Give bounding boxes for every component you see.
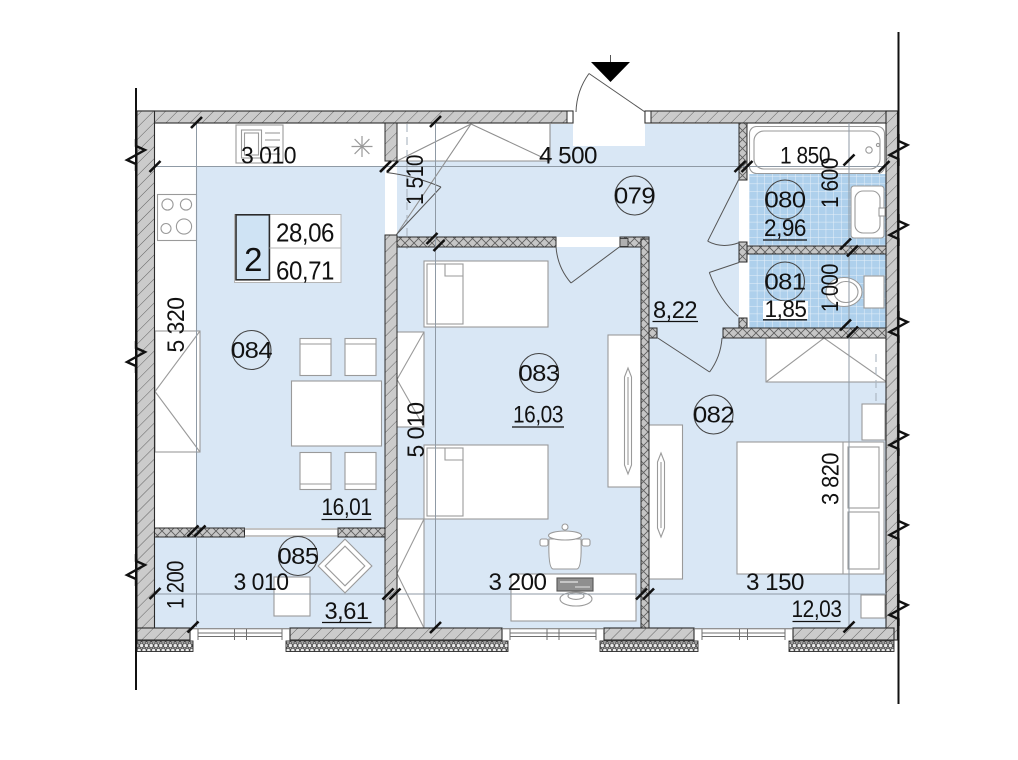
svg-text:1,85: 1,85 [765,296,807,323]
svg-text:1 000: 1 000 [817,264,844,312]
svg-text:3 820: 3 820 [818,453,845,505]
svg-text:8,22: 8,22 [653,297,697,324]
svg-text:4 500: 4 500 [539,143,597,170]
svg-text:5 010: 5 010 [403,402,430,457]
svg-text:082: 082 [693,402,734,428]
svg-text:079: 079 [614,183,655,209]
svg-text:3 010: 3 010 [234,569,289,596]
svg-text:1 200: 1 200 [163,561,190,609]
svg-text:080: 080 [765,187,806,213]
svg-text:3 200: 3 200 [489,569,547,596]
svg-text:3 010: 3 010 [241,143,296,170]
svg-text:16,01: 16,01 [322,494,372,521]
svg-text:5 320: 5 320 [163,297,190,352]
svg-text:2,96: 2,96 [764,215,806,242]
svg-text:12,03: 12,03 [792,596,842,623]
svg-text:60,71: 60,71 [276,256,334,286]
svg-text:2: 2 [244,241,262,278]
svg-text:16,03: 16,03 [513,402,563,429]
svg-text:083: 083 [519,360,560,386]
svg-text:3,61: 3,61 [325,598,369,625]
svg-text:1 510: 1 510 [402,155,429,205]
svg-text:085: 085 [278,543,319,569]
svg-text:3 150: 3 150 [746,569,804,596]
svg-text:1 600: 1 600 [817,158,844,208]
svg-text:084: 084 [231,337,273,363]
svg-text:28,06: 28,06 [276,218,334,248]
svg-text:081: 081 [765,269,806,295]
